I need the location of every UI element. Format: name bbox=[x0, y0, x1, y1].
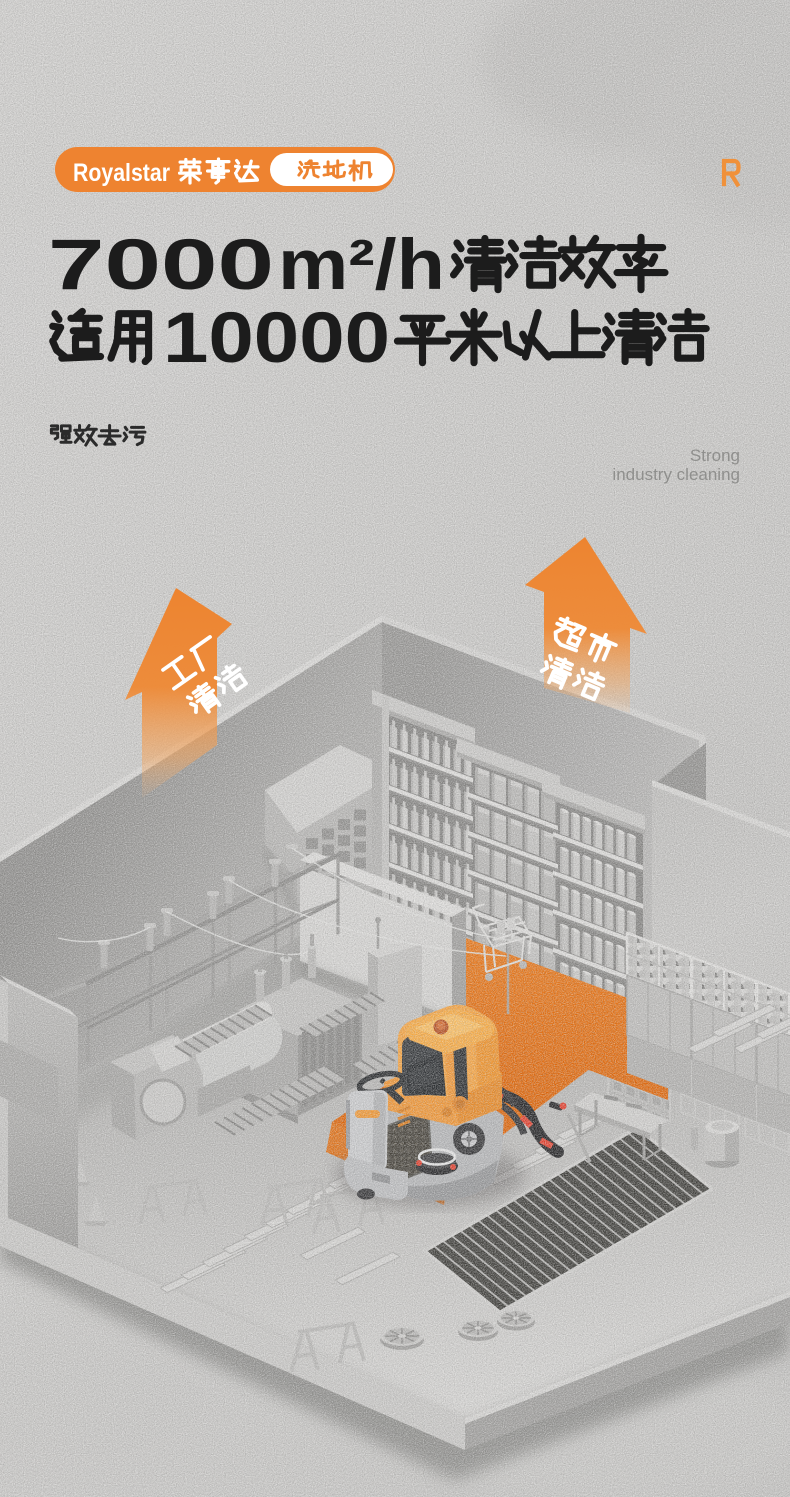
svg-text:7000: 7000 bbox=[48, 225, 274, 304]
svg-text:m²/h: m²/h bbox=[278, 225, 445, 304]
svg-text:industry cleaning: industry cleaning bbox=[612, 465, 740, 484]
svg-text:Strong: Strong bbox=[690, 446, 740, 465]
svg-text:Royalstar: Royalstar bbox=[73, 159, 170, 187]
svg-text:10000: 10000 bbox=[163, 299, 390, 378]
